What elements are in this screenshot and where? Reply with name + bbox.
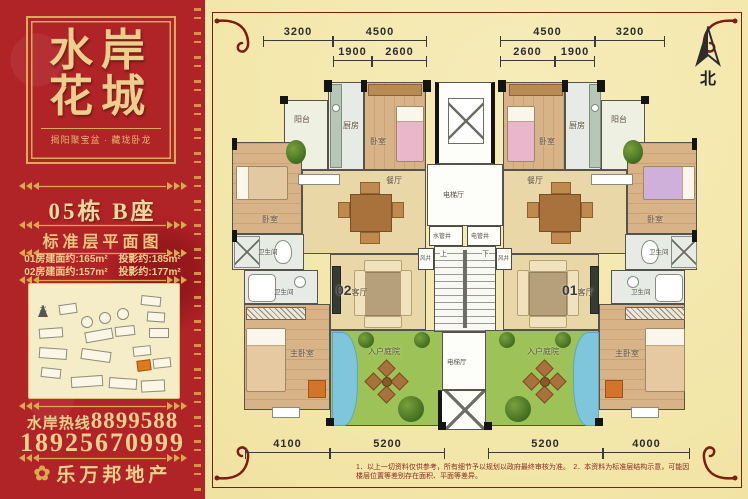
agency-name: 乐万邦地产 — [56, 460, 171, 487]
wardrobe — [246, 307, 306, 320]
chair — [581, 202, 593, 218]
agency-row: ✿ 乐万邦地产 — [0, 460, 205, 487]
area-01-built: 01房建面约:165m² — [24, 254, 107, 265]
corner-flourish-icon — [214, 15, 254, 55]
living-label: 客厅 — [578, 288, 594, 297]
kitchen-sink — [332, 104, 340, 112]
poster-background: 水岸 花城 揭阳聚宝盆 · 藏珑卧龙 05栋 B座 标准层平面图 01房建面约:… — [0, 0, 748, 499]
bathtub — [655, 274, 683, 302]
wall-pier — [484, 422, 492, 430]
brand-title-line1: 水岸 — [49, 28, 153, 74]
dim-top-3: 4500 — [500, 40, 595, 41]
wall-pier — [438, 422, 446, 430]
desk — [368, 84, 422, 96]
bed — [507, 106, 535, 162]
tree — [398, 396, 424, 422]
site-building — [41, 367, 62, 379]
flower-logo-icon: ✿ — [34, 461, 51, 486]
gold-divider — [18, 182, 187, 190]
plant — [414, 332, 430, 348]
plant — [286, 140, 306, 164]
site-building — [99, 312, 111, 324]
bathtub — [248, 274, 276, 302]
brand-subtitle: 揭阳聚宝盆 · 藏珑卧龙 — [41, 128, 161, 146]
core-label: 水管井 — [433, 231, 451, 240]
wall-pier — [562, 80, 568, 92]
chair — [551, 232, 571, 244]
wall-pier — [326, 418, 334, 426]
sitemap-north-arrow-icon: 北 — [35, 288, 51, 314]
chair — [360, 182, 380, 194]
elevator-hall-top — [427, 164, 503, 226]
window-marker — [591, 174, 633, 185]
dim-bottom-1: 4100 — [245, 452, 330, 453]
wall-pier — [597, 80, 605, 92]
chair — [527, 202, 539, 218]
unit-number: 01 — [562, 282, 578, 298]
site-building — [141, 379, 166, 392]
disclaimer-text: 1．以上一切资料仅供参考，所有细节予以规划以政府最终审核为准。 2．本资料为标准… — [356, 463, 690, 481]
wall-pier — [361, 80, 367, 92]
dim-bottom-4: 4000 — [603, 452, 690, 453]
site-building — [109, 377, 138, 390]
dim-top-1: 3200 — [263, 40, 333, 41]
nightstand — [308, 380, 326, 398]
basin — [294, 276, 306, 288]
room-label: 卫生间 — [631, 286, 651, 296]
core-label: 电梯厅 — [443, 190, 464, 200]
room-label: 卧室 — [539, 136, 555, 147]
room-label: 厨房 — [569, 120, 585, 131]
dim-bottom-2: 5200 — [330, 452, 445, 453]
area-line-01: 01房建面约:165m² 投影约:185m² — [0, 253, 205, 266]
sofa — [364, 260, 402, 272]
sofa — [529, 260, 567, 272]
site-building — [84, 328, 113, 344]
site-building — [147, 311, 166, 322]
sofa — [400, 270, 412, 316]
chevrons-right-icon — [166, 182, 187, 190]
corner-flourish-icon — [214, 444, 254, 484]
sofa — [517, 270, 529, 316]
stairs-down-label: 下 — [482, 249, 489, 259]
brand-title-line2: 花城 — [49, 74, 153, 120]
brand-logo-frame: 水岸 花城 揭阳聚宝盆 · 藏珑卧龙 — [26, 16, 176, 164]
corner-flourish-icon — [698, 444, 738, 484]
chair — [338, 202, 350, 218]
room-label: 厨房 — [343, 120, 359, 131]
area-01-projected: 投影约:185m² — [118, 254, 180, 265]
kitchen-counter — [330, 84, 342, 168]
core-label: 风井 — [420, 254, 431, 262]
living-label: 客厅 — [352, 288, 368, 297]
site-building — [58, 303, 77, 315]
dim-top-2: 4500 — [333, 40, 427, 41]
core-label: 电梯厅 — [447, 356, 467, 366]
chevrons-left-icon — [18, 182, 39, 190]
chair — [392, 202, 404, 218]
sofa — [529, 316, 567, 328]
stair-rail — [463, 250, 467, 328]
dim-top-sub-4: 1900 — [555, 60, 595, 61]
wall-pier — [692, 230, 697, 242]
dining-table — [350, 194, 392, 232]
site-building — [115, 325, 136, 337]
bed — [246, 328, 286, 392]
shower — [234, 236, 260, 268]
room-label: 主卧室 — [615, 348, 639, 359]
wall-pier — [324, 80, 332, 92]
site-building — [71, 375, 104, 388]
site-building — [153, 357, 172, 369]
plant — [623, 140, 643, 164]
wall-pier — [498, 80, 506, 92]
wall-pier — [595, 418, 603, 426]
core-label: 风井 — [498, 254, 509, 262]
window-marker — [631, 407, 659, 418]
garden-table — [382, 377, 392, 387]
site-building — [133, 345, 152, 357]
room-label: 阳台 — [294, 114, 310, 125]
dining-table — [539, 194, 581, 232]
site-building — [117, 308, 129, 320]
elevator-car — [448, 98, 484, 144]
water-feature — [573, 332, 599, 426]
wall-pier — [232, 138, 237, 150]
core-label: 电管井 — [471, 231, 489, 240]
desk — [509, 84, 563, 96]
window-marker — [298, 174, 340, 185]
room-label: 卧室 — [647, 214, 663, 225]
wall-pier — [692, 138, 697, 150]
plant — [499, 332, 515, 348]
rug — [364, 272, 402, 316]
wall-pier — [232, 230, 237, 242]
dim-bottom-3: 5200 — [488, 452, 603, 453]
site-building — [39, 327, 64, 339]
kitchen-sink — [591, 104, 599, 112]
site-building — [149, 328, 169, 338]
bed — [643, 166, 695, 200]
room-label: 卫生间 — [274, 286, 294, 296]
room-label: 主卧室 — [290, 348, 314, 359]
site-building — [39, 347, 68, 360]
wall-pier — [423, 80, 431, 92]
site-building — [80, 348, 111, 363]
room-label: 阳台 — [611, 114, 627, 125]
site-building — [141, 295, 162, 307]
water-feature — [332, 332, 358, 426]
garden-table — [540, 377, 550, 387]
nightstand — [605, 380, 623, 398]
room-label: 入户庭院 — [368, 346, 400, 357]
window-marker — [272, 407, 300, 418]
bed — [645, 328, 685, 392]
room-label: 卫生间 — [649, 246, 669, 256]
north-arrow-icon — [691, 26, 725, 68]
unit-label-02: 02客厅 — [336, 282, 368, 300]
dim-top-4: 3200 — [595, 40, 665, 41]
room-label: 卧室 — [370, 136, 386, 147]
brand-panel: 水岸 花城 揭阳聚宝盆 · 藏珑卧龙 05栋 B座 标准层平面图 01房建面约:… — [0, 0, 205, 499]
room-label: 餐厅 — [386, 175, 402, 186]
dim-top-sub-1: 1900 — [333, 60, 372, 61]
room-label: 入户庭院 — [527, 346, 559, 357]
wardrobe — [625, 307, 685, 320]
dim-top-sub-3: 2600 — [500, 60, 555, 61]
room-label: 卧室 — [262, 214, 278, 225]
kitchen-counter — [589, 84, 601, 168]
chair — [360, 232, 380, 244]
bed — [236, 166, 288, 200]
site-building — [81, 316, 93, 328]
stairs-up-label: 上 — [440, 249, 447, 259]
site-map: 北 — [28, 283, 180, 399]
bed — [396, 106, 424, 162]
room-label: 卫生间 — [258, 246, 278, 256]
tree — [505, 396, 531, 422]
unit-label-01: 01客厅 — [562, 282, 594, 300]
dim-top-sub-2: 2600 — [372, 60, 427, 61]
wall-pier — [641, 96, 649, 104]
room-label: 餐厅 — [527, 175, 543, 186]
chair — [551, 182, 571, 194]
sofa — [364, 316, 402, 328]
wall-pier — [280, 96, 288, 104]
site-building-highlighted — [136, 359, 151, 372]
floor-plan: 阳台 厨房 卧室 卧室 餐厅 卫生间 卫生间 主卧室 — [232, 74, 697, 431]
unit-number: 02 — [336, 282, 352, 298]
